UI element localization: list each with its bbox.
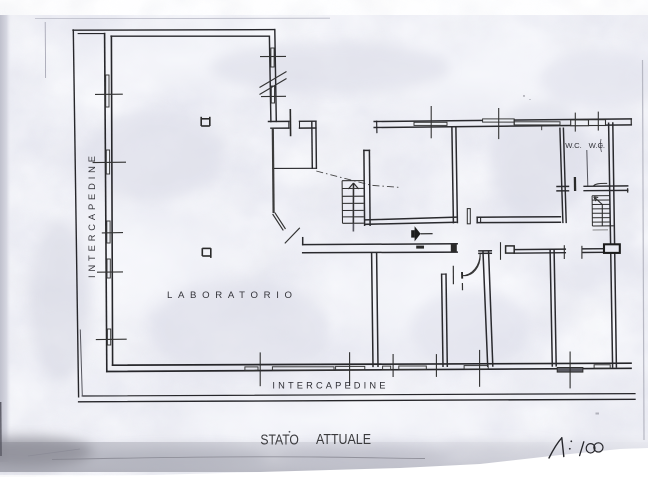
svg-text:W.C.: W.C. <box>589 141 605 150</box>
svg-text:ATTUALE: ATTUALE <box>316 432 371 448</box>
svg-text:INTERCAPEDINE: INTERCAPEDINE <box>272 381 385 391</box>
svg-text:W.C.: W.C. <box>565 141 581 150</box>
svg-text:STATO: STATO <box>260 432 299 448</box>
